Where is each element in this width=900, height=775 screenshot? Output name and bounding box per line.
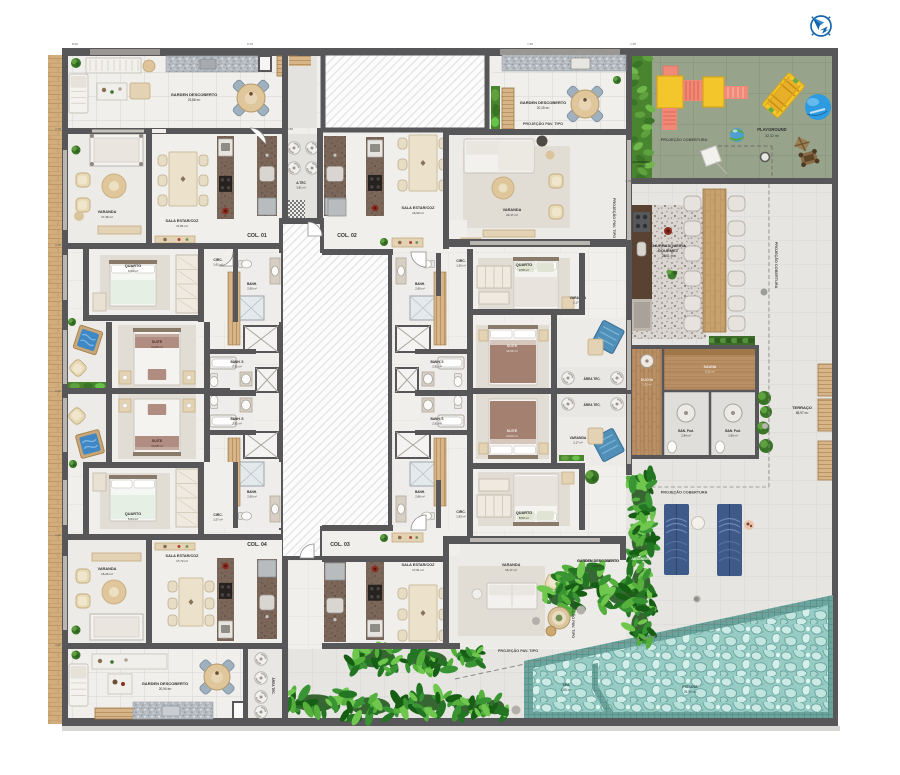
svg-text:17,81 m²: 17,81 m² — [176, 224, 188, 228]
svg-text:SALA ESTAR/COZ: SALA ESTAR/COZ — [402, 206, 436, 210]
svg-text:6,11 m²: 6,11 m² — [705, 370, 714, 374]
svg-text:1,57 m²: 1,57 m² — [213, 518, 223, 522]
svg-text:BANH.: BANH. — [415, 282, 425, 286]
svg-text:SUITE: SUITE — [507, 344, 518, 348]
svg-text:SALA ESTAR/COZ: SALA ESTAR/COZ — [166, 554, 200, 558]
svg-text:2,91 m²: 2,91 m² — [432, 422, 442, 426]
svg-text:9,03 m²: 9,03 m² — [128, 269, 138, 273]
svg-text:CIRC.: CIRC. — [213, 258, 222, 262]
svg-text:BANH. S: BANH. S — [230, 360, 243, 364]
svg-text:8,02: 8,02 — [72, 42, 78, 46]
svg-text:BANH. S: BANH. S — [430, 417, 443, 421]
svg-text:BANH.: BANH. — [247, 282, 257, 286]
svg-text:BAN. Pod.: BAN. Pod. — [678, 429, 694, 433]
svg-text:2,91 m²: 2,91 m² — [432, 365, 442, 369]
svg-text:VARANDA: VARANDA — [503, 208, 522, 212]
svg-text:17,72 m²: 17,72 m² — [176, 559, 188, 563]
svg-text:A.TEC: A.TEC — [296, 181, 306, 185]
svg-text:2,90 m²: 2,90 m² — [247, 495, 257, 499]
svg-text:SUITE: SUITE — [152, 340, 163, 344]
svg-text:GARDEN DESCOBERTO: GARDEN DESCOBERTO — [142, 681, 189, 686]
svg-text:SALA ESTAR/COZ: SALA ESTAR/COZ — [166, 219, 200, 223]
svg-text:2,78: 2,78 — [55, 127, 61, 131]
svg-text:28,51 m²: 28,51 m² — [662, 254, 675, 258]
svg-text:ÁREA TEC.: ÁREA TEC. — [583, 376, 600, 381]
svg-text:PROJEÇÃO COBERTURA: PROJEÇÃO COBERTURA — [774, 242, 779, 289]
svg-text:25,59 m²: 25,59 m² — [684, 690, 697, 694]
svg-text:GARDEN DESCOBERTO: GARDEN DESCOBERTO — [577, 559, 619, 563]
svg-text:JARDINEIRA: JARDINEIRA — [631, 557, 651, 561]
svg-text:23,68 m²: 23,68 m² — [188, 98, 201, 102]
svg-text:8,50 m²: 8,50 m² — [519, 516, 529, 520]
svg-text:2,08: 2,08 — [55, 243, 61, 247]
svg-text:COL. 04: COL. 04 — [247, 542, 267, 548]
svg-text:DUCHA: DUCHA — [641, 378, 654, 382]
svg-text:CIRC.: CIRC. — [456, 259, 465, 263]
svg-text:SUITE: SUITE — [507, 429, 518, 433]
svg-text:COL. 03: COL. 03 — [330, 542, 350, 548]
svg-text:3,00: 3,00 — [55, 643, 61, 647]
svg-text:4,75: 4,75 — [625, 179, 631, 183]
svg-text:20,15 m²: 20,15 m² — [537, 106, 550, 110]
svg-text:16,17 m²: 16,17 m² — [505, 568, 517, 572]
svg-text:BANH. S: BANH. S — [230, 417, 243, 421]
svg-text:2,90 m²: 2,90 m² — [247, 287, 257, 291]
svg-text:PISCINA: PISCINA — [682, 685, 698, 689]
svg-text:9,58 m²: 9,58 m² — [519, 268, 529, 272]
svg-text:COL. 01: COL. 01 — [247, 233, 267, 239]
svg-text:VARANDA: VARANDA — [98, 210, 117, 214]
svg-text:10,86 m²: 10,86 m² — [151, 345, 163, 349]
svg-text:3,72 m²: 3,72 m² — [642, 383, 652, 387]
svg-text:SPA: SPA — [562, 683, 570, 687]
svg-text:QUARTO: QUARTO — [516, 511, 532, 515]
svg-text:TERRAÇO: TERRAÇO — [792, 405, 812, 410]
svg-text:2,86 m²: 2,86 m² — [415, 495, 425, 499]
svg-text:10,06 m²: 10,06 m² — [506, 349, 518, 353]
svg-text:PROJEÇÃO PAV. TIPO: PROJEÇÃO PAV. TIPO — [612, 198, 617, 238]
svg-text:7,46: 7,46 — [527, 42, 533, 46]
svg-text:2,86: 2,86 — [445, 129, 451, 133]
svg-text:10,03 m²: 10,03 m² — [506, 434, 518, 438]
svg-text:12,86 m²: 12,86 m² — [592, 564, 604, 568]
svg-text:2,80 m²: 2,80 m² — [415, 287, 425, 291]
svg-text:QUARTO: QUARTO — [516, 263, 532, 267]
svg-text:20,94 m²: 20,94 m² — [159, 687, 172, 691]
svg-text:2,86: 2,86 — [287, 127, 293, 131]
svg-text:7,26 m²: 7,26 m² — [636, 164, 646, 168]
svg-text:10,08 m²: 10,08 m² — [151, 444, 163, 448]
svg-text:PROJEÇÃO PAV. TIPO: PROJEÇÃO PAV. TIPO — [571, 598, 576, 638]
svg-text:VARANDA: VARANDA — [502, 563, 521, 567]
svg-text:23,17 m²: 23,17 m² — [506, 213, 518, 217]
svg-text:BANH.: BANH. — [415, 490, 425, 494]
svg-text:1,83 m²: 1,83 m² — [456, 515, 466, 519]
svg-text:ÁREA TEC.: ÁREA TEC. — [271, 677, 276, 694]
svg-text:SALA ESTAR/COZ: SALA ESTAR/COZ — [402, 563, 436, 567]
svg-text:BAN. Pod.: BAN. Pod. — [725, 429, 741, 433]
svg-text:PLAYGROUND: PLAYGROUND — [757, 127, 786, 132]
svg-text:88,97 m²: 88,97 m² — [796, 411, 809, 415]
svg-text:SAUNA: SAUNA — [704, 365, 717, 369]
svg-text:SUITE: SUITE — [152, 439, 163, 443]
svg-text:32,32 m²: 32,32 m² — [765, 134, 779, 138]
svg-text:VARANDA: VARANDA — [570, 436, 587, 440]
svg-text:2,84 m²: 2,84 m² — [681, 434, 691, 438]
svg-text:2,91 m²: 2,91 m² — [232, 422, 242, 426]
svg-text:QUARTO: QUARTO — [125, 264, 141, 268]
svg-text:GARDEN DESCOBERTO: GARDEN DESCOBERTO — [520, 100, 567, 105]
svg-text:2,91 m²: 2,91 m² — [232, 365, 242, 369]
svg-text:17,91 m²: 17,91 m² — [412, 568, 424, 572]
svg-text:PROJEÇÃO PAV. TIPO: PROJEÇÃO PAV. TIPO — [498, 648, 538, 653]
svg-text:6,70: 6,70 — [247, 42, 253, 46]
svg-text:CIRC.: CIRC. — [213, 513, 222, 517]
svg-text:CIRC.: CIRC. — [456, 510, 465, 514]
svg-text:0,62: 0,62 — [55, 389, 61, 393]
svg-text:BANH. S: BANH. S — [430, 360, 443, 364]
svg-text:QUARTO: QUARTO — [125, 512, 141, 516]
svg-text:1,55 m²: 1,55 m² — [456, 264, 466, 268]
svg-text:1,25: 1,25 — [630, 42, 636, 46]
svg-text:1,02: 1,02 — [55, 533, 61, 537]
svg-text:16,90 m²: 16,90 m² — [412, 211, 424, 215]
svg-text:PROJEÇÃO PAV. TIPO: PROJEÇÃO PAV. TIPO — [523, 121, 563, 126]
svg-text:ÁREA TEC.: ÁREA TEC. — [583, 402, 600, 407]
svg-text:2,17 m²: 2,17 m² — [573, 441, 583, 445]
svg-text:17,46 m²: 17,46 m² — [101, 215, 113, 219]
svg-text:VARANDA: VARANDA — [98, 567, 117, 571]
svg-text:3,81 m²: 3,81 m² — [296, 186, 306, 190]
svg-text:GARDEN DESCOBERTO: GARDEN DESCOBERTO — [171, 92, 218, 97]
svg-text:2,85 m²: 2,85 m² — [728, 434, 738, 438]
svg-text:16,26 m²: 16,26 m² — [101, 572, 113, 576]
svg-text:COL. 02: COL. 02 — [337, 233, 357, 239]
svg-text:BANH.: BANH. — [247, 490, 257, 494]
svg-text:GOURMET: GOURMET — [658, 248, 679, 253]
svg-text:5,04 m²: 5,04 m² — [128, 517, 138, 521]
svg-text:4,85 m²: 4,85 m² — [561, 688, 572, 692]
svg-text:PROJEÇÃO COBERTURA: PROJEÇÃO COBERTURA — [661, 137, 708, 142]
svg-text:PROJEÇÃO COBERTURA: PROJEÇÃO COBERTURA — [661, 490, 708, 495]
